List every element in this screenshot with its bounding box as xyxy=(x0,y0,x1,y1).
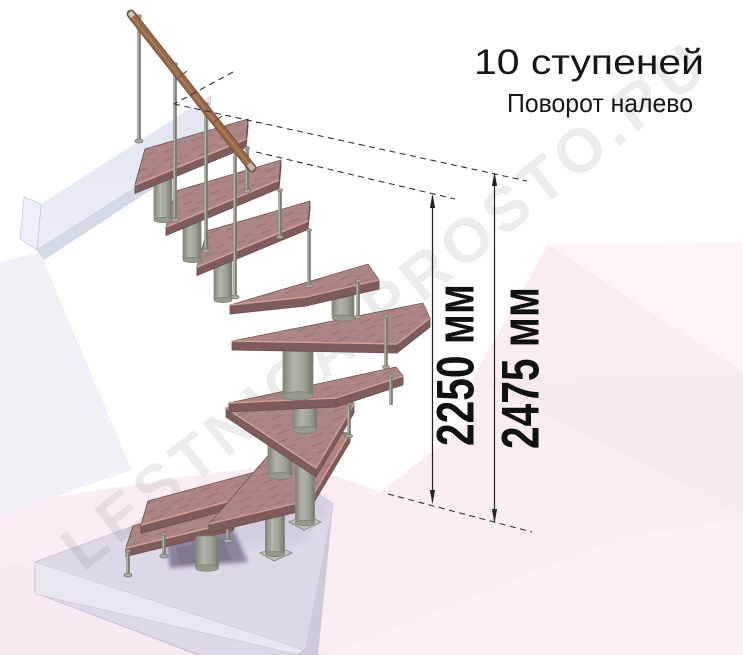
svg-text:10 ступеней: 10 ступеней xyxy=(474,43,704,82)
svg-text:Поворот налево: Поворот налево xyxy=(507,88,693,118)
svg-text:2475 мм: 2475 мм xyxy=(492,287,551,449)
svg-text:2250 мм: 2250 мм xyxy=(427,284,486,446)
